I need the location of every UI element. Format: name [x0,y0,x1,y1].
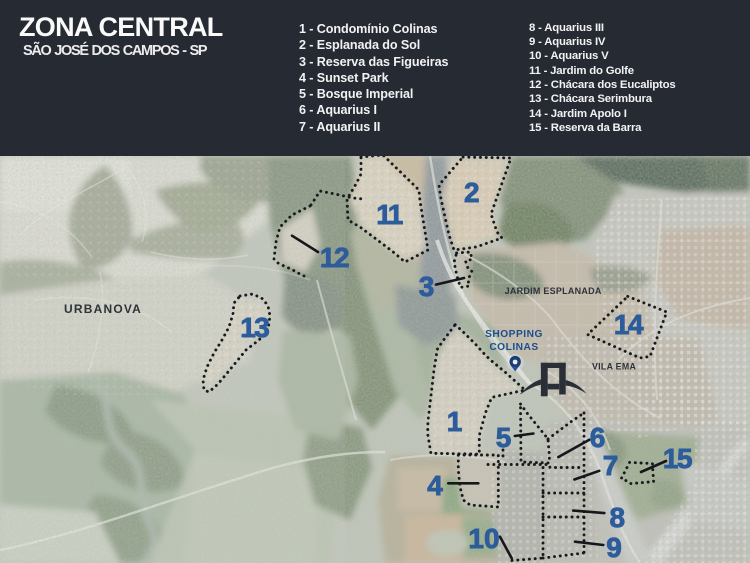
svg-text:9: 9 [606,532,622,563]
svg-text:1: 1 [447,406,463,437]
svg-text:13: 13 [240,312,269,343]
svg-text:COLINAS: COLINAS [489,342,538,353]
svg-text:5: 5 [496,422,512,453]
svg-text:6: 6 [590,422,606,453]
svg-text:VILA EMA: VILA EMA [592,362,636,372]
svg-text:12: 12 [320,242,349,273]
svg-text:4: 4 [427,470,443,501]
svg-text:2: 2 [464,177,480,208]
svg-text:SHOPPING: SHOPPING [485,329,543,340]
svg-text:JARDIM ESPLANADA: JARDIM ESPLANADA [505,286,602,296]
svg-text:8: 8 [610,502,626,533]
svg-text:URBANOVA: URBANOVA [64,302,142,316]
svg-text:10: 10 [468,523,499,554]
svg-text:11: 11 [376,199,403,230]
svg-text:15: 15 [663,443,692,474]
svg-text:3: 3 [419,271,435,302]
svg-text:7: 7 [603,450,619,481]
svg-text:14: 14 [614,309,644,340]
